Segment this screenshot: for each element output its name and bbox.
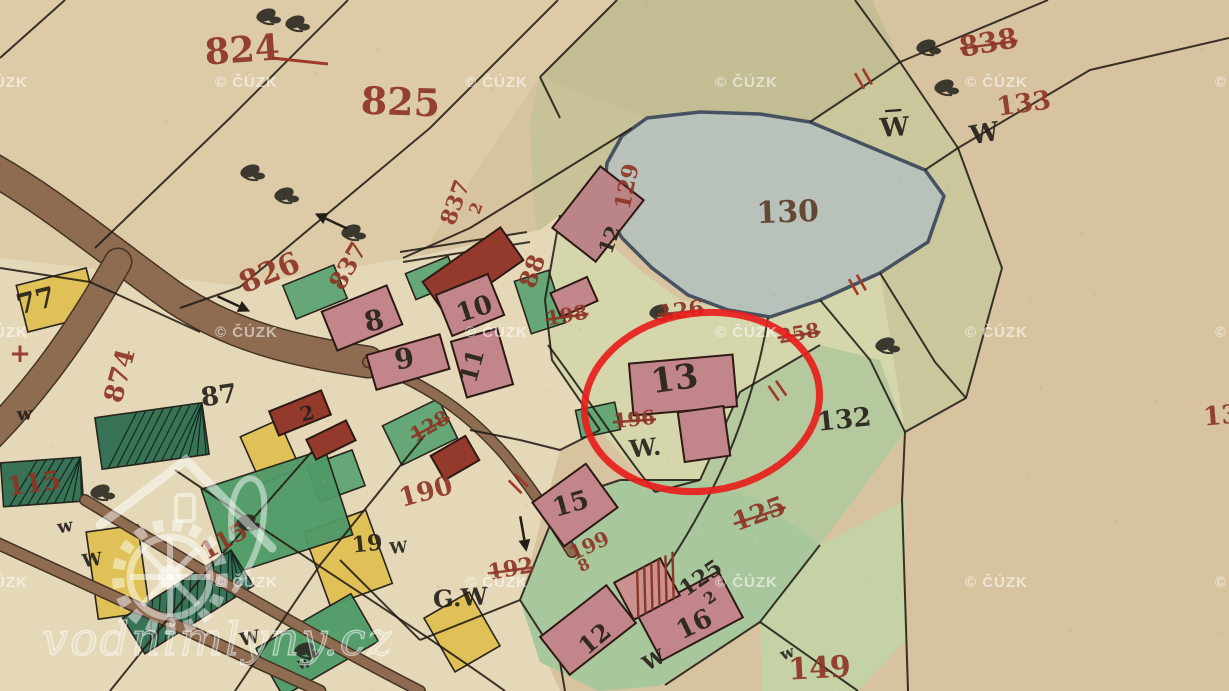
grain-dot [395, 243, 396, 244]
cuzk-watermark: © ČÚZK [215, 323, 278, 341]
parcel-label: 132 [816, 402, 873, 438]
logo-text: vodnimlyny.cz [42, 612, 394, 666]
grain-dot [49, 444, 52, 447]
grain-dot [1200, 48, 1204, 52]
grain-dot [76, 337, 78, 339]
svg-text:130: 130 [756, 194, 820, 231]
grain-dot [606, 99, 609, 102]
grain-dot [1070, 32, 1071, 33]
grain-dot [958, 386, 960, 388]
grain-dot [1182, 311, 1184, 313]
grain-dot [57, 449, 58, 450]
grain-dot [730, 195, 732, 197]
grain-dot [525, 201, 527, 203]
grain-dot [436, 585, 440, 589]
parcel-label: 824 [203, 26, 281, 73]
grain-dot [79, 139, 81, 141]
grain-dot [642, 488, 646, 492]
grain-dot [1079, 231, 1082, 234]
grain-dot [344, 293, 346, 295]
cuzk-watermark: © ČÚZK [965, 323, 1028, 341]
grain-dot [539, 518, 543, 522]
grain-dot [843, 483, 845, 485]
grain-dot [620, 232, 623, 235]
grain-dot [700, 530, 703, 533]
svg-text:825: 825 [360, 78, 441, 126]
grain-dot [881, 227, 882, 228]
grain-dot [808, 160, 810, 162]
grain-dot [78, 680, 80, 682]
grain-dot [661, 89, 664, 92]
grain-dot [898, 274, 900, 276]
grain-dot [943, 682, 945, 684]
svg-text:W: W [80, 549, 105, 573]
grain-dot [501, 60, 504, 63]
grain-dot [996, 185, 997, 186]
parcel-label: W [388, 537, 410, 558]
svg-text:W: W [878, 112, 911, 144]
grain-dot [1145, 19, 1146, 20]
grain-dot [975, 160, 977, 162]
grain-dot [187, 62, 189, 64]
grain-dot [783, 262, 785, 264]
grain-dot [798, 351, 799, 352]
cuzk-watermark: © ČÚZK [1215, 73, 1229, 91]
grain-dot [1088, 248, 1090, 250]
grain-dot [413, 174, 415, 176]
grain-dot [303, 514, 304, 515]
grain-dot [1222, 130, 1225, 133]
grain-dot [600, 252, 602, 254]
parcel-label: 130 [756, 194, 820, 231]
grain-dot [622, 360, 623, 361]
grain-dot [840, 137, 841, 138]
grain-dot [812, 354, 815, 357]
grain-dot [1155, 400, 1159, 404]
grain-dot [742, 255, 743, 256]
grain-dot [69, 204, 71, 206]
grain-dot [948, 185, 951, 188]
grain-dot [719, 415, 721, 417]
grain-dot [96, 277, 98, 279]
grain-dot [376, 47, 380, 51]
grain-dot [525, 504, 528, 507]
grain-dot [975, 597, 978, 600]
grain-dot [871, 226, 875, 230]
grain-dot [554, 439, 558, 443]
grain-dot [160, 255, 161, 256]
grain-dot [835, 546, 838, 549]
grain-dot [312, 377, 315, 380]
grain-dot [1198, 353, 1200, 355]
parcel-label: 149 [787, 649, 851, 687]
grain-dot [343, 279, 346, 282]
grain-dot [891, 406, 893, 408]
grain-dot [241, 600, 244, 603]
grain-dot [1140, 218, 1143, 221]
parcel-label: W [80, 549, 105, 573]
grain-dot [323, 259, 324, 260]
grain-dot [1110, 510, 1112, 512]
grain-dot [1124, 382, 1125, 383]
grain-dot [950, 686, 953, 689]
grain-dot [143, 309, 144, 310]
grain-dot [547, 390, 550, 393]
grain-dot [1031, 519, 1033, 521]
grain-dot [326, 419, 330, 423]
grain-dot [925, 103, 928, 106]
grain-dot [1209, 237, 1212, 240]
grain-dot [913, 288, 915, 290]
grain-dot [84, 684, 85, 685]
grain-dot [573, 674, 575, 676]
parcel-label: W [967, 117, 1003, 152]
grain-dot [644, 4, 647, 7]
grain-dot [349, 683, 350, 684]
grain-dot [242, 445, 244, 447]
grain-dot [647, 500, 649, 502]
grain-dot [1217, 550, 1219, 552]
grain-dot [1009, 368, 1010, 369]
grain-dot [895, 149, 898, 152]
grain-dot [1053, 584, 1055, 586]
grain-dot [563, 508, 567, 512]
grain-dot [549, 646, 550, 647]
grain-dot [329, 276, 332, 279]
grain-dot [549, 102, 550, 103]
grain-dot [867, 580, 868, 581]
grain-dot [107, 304, 111, 308]
cuzk-watermark: © ČÚZK [465, 573, 528, 591]
grain-dot [165, 121, 169, 125]
grain-dot [431, 370, 432, 371]
grain-dot [267, 510, 270, 513]
grain-dot [89, 263, 91, 265]
grain-dot [570, 325, 572, 327]
grain-dot [900, 179, 903, 182]
grain-dot [1190, 154, 1193, 157]
grain-dot [1044, 100, 1046, 102]
grain-dot [954, 605, 956, 607]
grain-dot [130, 18, 131, 19]
grain-dot [647, 472, 649, 474]
grain-dot [236, 608, 238, 610]
cuzk-watermark: © ČÚZK [215, 73, 278, 91]
grain-dot [861, 524, 862, 525]
grain-dot [532, 218, 533, 219]
grain-dot [11, 9, 12, 10]
grain-dot [351, 112, 353, 114]
grain-dot [1190, 279, 1192, 281]
grain-dot [1089, 17, 1090, 18]
grain-dot [272, 563, 274, 565]
grain-dot [377, 236, 379, 238]
grain-dot [324, 459, 328, 463]
grain-dot [281, 349, 282, 350]
grain-dot [219, 133, 221, 135]
cadastral-map: 8248258268372837881291981262581968381338… [0, 0, 1229, 691]
parcel-label: W. [627, 431, 662, 463]
grain-dot [1037, 509, 1038, 510]
grain-dot [150, 328, 152, 330]
grain-dot [431, 442, 433, 444]
svg-text:824: 824 [203, 26, 281, 73]
cuzk-watermark: © ČÚZK [0, 73, 28, 91]
svg-text:+: + [9, 339, 31, 369]
grain-dot [834, 687, 838, 691]
grain-dot [363, 346, 364, 347]
cuzk-watermark: © ČÚZK [1215, 573, 1229, 591]
grain-dot [666, 120, 668, 122]
svg-text:w: w [15, 403, 34, 425]
grain-dot [806, 296, 809, 299]
grain-dot [417, 193, 419, 195]
grain-dot [314, 72, 317, 75]
grain-dot [605, 317, 606, 318]
grain-dot [1207, 239, 1210, 242]
grain-dot [771, 636, 774, 639]
grain-dot [861, 128, 863, 130]
grain-dot [1030, 300, 1033, 303]
grain-dot [530, 527, 532, 529]
grain-dot [1197, 170, 1200, 173]
grain-dot [1128, 606, 1130, 608]
grain-dot [1149, 11, 1151, 13]
grain-dot [417, 11, 418, 12]
grain-dot [668, 458, 671, 461]
grain-dot [1039, 94, 1041, 96]
grain-dot [297, 430, 298, 431]
grain-dot [11, 483, 13, 485]
grain-dot [1226, 226, 1229, 229]
grain-dot [618, 229, 620, 231]
grain-dot [489, 302, 492, 305]
svg-text:W.: W. [627, 431, 662, 463]
grain-dot [772, 282, 775, 285]
grain-dot [102, 267, 105, 270]
cuzk-watermark: © ČÚZK [465, 73, 528, 91]
grain-dot [153, 46, 154, 47]
grain-dot [1100, 552, 1103, 555]
grain-dot [1114, 520, 1117, 523]
grain-dot [841, 28, 843, 30]
parcel-label: 13 [1202, 400, 1229, 433]
grain-dot [985, 147, 986, 148]
grain-dot [43, 366, 45, 368]
grain-dot [478, 281, 480, 283]
grain-dot [753, 537, 757, 541]
grain-dot [412, 661, 413, 662]
grain-dot [738, 304, 741, 307]
grain-dot [517, 513, 520, 516]
grain-dot [918, 369, 919, 370]
grain-dot [523, 669, 525, 671]
grain-dot [269, 434, 272, 437]
grain-dot [638, 199, 639, 200]
grain-dot [126, 557, 128, 559]
cuzk-watermark: © ČÚZK [0, 323, 28, 341]
cuzk-watermark: © ČÚZK [715, 573, 778, 591]
grain-dot [744, 237, 746, 239]
grain-dot [64, 365, 65, 366]
svg-text:W: W [388, 537, 410, 558]
cuzk-watermark: © ČÚZK [1215, 323, 1229, 341]
grain-dot [579, 328, 582, 331]
cuzk-watermark: © ČÚZK [715, 323, 778, 341]
grain-dot [849, 503, 851, 505]
svg-text:W: W [967, 117, 1003, 152]
grain-dot [557, 227, 558, 228]
grain-dot [798, 429, 800, 431]
grain-dot [992, 637, 994, 639]
grain-dot [298, 251, 301, 254]
grain-dot [247, 212, 249, 214]
grain-dot [29, 180, 32, 183]
grain-dot [810, 97, 811, 98]
grain-dot [475, 25, 477, 27]
grain-dot [657, 242, 658, 243]
grain-dot [304, 597, 306, 599]
grain-dot [1009, 101, 1012, 104]
grain-dot [1106, 312, 1108, 314]
grain-dot [296, 295, 299, 298]
grain-dot [816, 148, 818, 150]
grain-dot [508, 660, 511, 663]
svg-text:149: 149 [787, 649, 851, 687]
grain-dot [1027, 474, 1029, 476]
map-viewport[interactable]: 8248258268372837881291981262581968381338… [0, 0, 1229, 691]
grain-dot [1069, 67, 1071, 69]
grain-dot [1039, 386, 1042, 389]
grain-dot [83, 494, 84, 495]
grain-dot [108, 685, 110, 687]
grain-dot [449, 63, 452, 66]
svg-text:87: 87 [199, 379, 239, 414]
grain-dot [5, 647, 7, 649]
grain-dot [1002, 18, 1004, 20]
grain-dot [230, 311, 233, 314]
grain-dot [566, 394, 569, 397]
grain-dot [1094, 294, 1097, 297]
grain-dot [254, 455, 255, 456]
grain-dot [1016, 433, 1018, 435]
grain-dot [684, 570, 686, 572]
grain-dot [303, 129, 305, 131]
grain-dot [265, 232, 268, 235]
cuzk-watermark: © ČÚZK [465, 323, 528, 341]
grain-dot [287, 8, 288, 9]
grain-dot [588, 554, 591, 557]
svg-text:13: 13 [1202, 400, 1229, 433]
parcel-label: 87 [199, 379, 239, 414]
svg-text:13: 13 [648, 356, 700, 402]
parcel-label: 19 [351, 530, 384, 559]
grain-dot [328, 220, 332, 224]
grain-dot [989, 670, 991, 672]
grain-dot [507, 309, 510, 312]
overline [885, 110, 901, 111]
grain-dot [976, 3, 979, 6]
grain-dot [323, 479, 326, 482]
grain-dot [388, 496, 389, 497]
grain-dot [1195, 175, 1197, 177]
grain-dot [1138, 322, 1140, 324]
grain-dot [1070, 379, 1072, 381]
grain-dot [905, 266, 908, 269]
svg-text:19: 19 [351, 530, 384, 559]
grain-dot [828, 616, 829, 617]
grain-dot [222, 362, 225, 365]
cuzk-watermark: © ČÚZK [965, 73, 1028, 91]
grain-dot [1068, 629, 1072, 633]
parcel-label: 825 [360, 78, 441, 126]
cuzk-watermark: © ČÚZK [0, 573, 28, 591]
grain-dot [441, 607, 444, 610]
grain-dot [887, 300, 888, 301]
grain-dot [834, 240, 836, 242]
grain-dot [541, 210, 543, 212]
grain-dot [156, 247, 157, 248]
grain-dot [1167, 322, 1170, 325]
grain-dot [1053, 390, 1054, 391]
grain-dot [385, 425, 386, 426]
grain-dot [1117, 474, 1119, 476]
cuzk-watermark: © ČÚZK [715, 73, 778, 91]
grain-dot [326, 386, 329, 389]
cuzk-watermark: © ČÚZK [965, 573, 1028, 591]
grain-dot [657, 28, 660, 31]
grain-dot [761, 36, 764, 39]
parcel-label: 196 [612, 405, 657, 433]
grain-dot [468, 344, 470, 346]
parcel-label: 13 [648, 356, 700, 402]
parcel-label: W [878, 110, 911, 145]
grain-dot [365, 114, 369, 118]
grain-dot [216, 55, 219, 58]
svg-text:132: 132 [816, 402, 873, 438]
grain-dot [1185, 423, 1186, 424]
grain-dot [958, 278, 961, 281]
grain-dot [772, 293, 775, 296]
grain-dot [212, 96, 214, 98]
grain-dot [231, 122, 234, 125]
grain-dot [422, 259, 424, 261]
grain-dot [1219, 631, 1222, 634]
parcel-label: w [15, 403, 34, 425]
grain-dot [571, 303, 575, 307]
grain-dot [1070, 527, 1071, 528]
grain-dot [265, 408, 268, 411]
grain-dot [371, 689, 373, 691]
grain-dot [896, 197, 898, 199]
grain-dot [460, 523, 462, 525]
grain-dot [119, 20, 120, 21]
grain-dot [480, 51, 483, 54]
grain-dot [896, 282, 897, 283]
grain-dot [656, 268, 658, 270]
grain-dot [53, 462, 55, 464]
building [678, 406, 731, 462]
parcel-label: + [9, 339, 31, 369]
